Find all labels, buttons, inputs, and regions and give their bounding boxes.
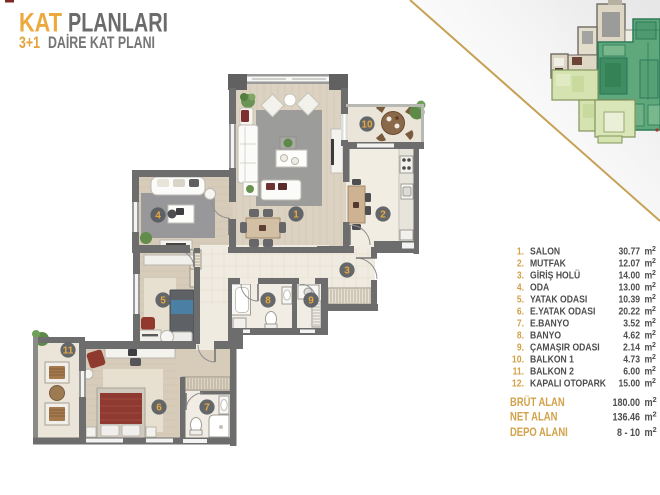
svg-text:2.14: 2.14 [623,342,640,354]
svg-text:7.: 7. [517,318,524,330]
svg-text:3.: 3. [517,270,524,282]
svg-text:2: 2 [652,246,656,253]
svg-text:2: 2 [380,209,386,220]
svg-text:2: 2 [653,410,657,419]
svg-text:4.62: 4.62 [623,330,640,342]
svg-text:12.07: 12.07 [619,258,641,270]
svg-text:1.: 1. [517,246,524,258]
svg-text:10.39: 10.39 [619,294,641,306]
svg-text:10.: 10. [512,354,524,366]
svg-text:136.46: 136.46 [613,412,641,424]
svg-text:10: 10 [361,119,373,130]
svg-text:12.: 12. [512,378,524,390]
svg-text:8.: 8. [517,330,524,342]
svg-text:BALKON 1: BALKON 1 [530,354,574,366]
svg-text:E.YATAK ODASI: E.YATAK ODASI [530,306,595,318]
svg-text:9: 9 [308,295,314,306]
svg-text:ÇAMAŞIR ODASI: ÇAMAŞIR ODASI [530,342,600,354]
svg-text:4.73: 4.73 [623,354,640,366]
svg-text:DEPO ALANI: DEPO ALANI [510,427,568,439]
svg-text:KAT: KAT [19,8,62,38]
svg-text:2: 2 [652,342,656,349]
svg-text:11: 11 [63,345,74,356]
svg-text:4.: 4. [517,282,524,294]
svg-text:1: 1 [293,209,299,220]
svg-text:2: 2 [652,270,656,277]
svg-text:NET ALAN: NET ALAN [510,412,557,424]
svg-text:BRÜT ALAN: BRÜT ALAN [510,396,565,409]
svg-text:2: 2 [652,258,656,265]
svg-text:11.: 11. [513,366,524,378]
svg-text:6.: 6. [517,306,524,318]
svg-text:4: 4 [155,210,161,221]
svg-text:9.: 9. [517,342,524,354]
svg-text:2: 2 [653,395,657,404]
svg-text:2: 2 [653,425,657,434]
svg-text:MUTFAK: MUTFAK [530,258,566,270]
svg-text:5.: 5. [517,294,524,306]
svg-text:3: 3 [344,265,350,276]
svg-text:8: 8 [265,295,271,306]
svg-text:2: 2 [652,330,656,337]
svg-text:2: 2 [652,354,656,361]
svg-text:ODA: ODA [530,282,550,294]
svg-text:2: 2 [652,366,656,373]
svg-text:2: 2 [652,282,656,289]
svg-text:DAİRE KAT PLANI: DAİRE KAT PLANI [48,34,155,52]
svg-text:180.00: 180.00 [613,397,641,409]
svg-text:3.52: 3.52 [623,318,640,330]
svg-text:E.BANYO: E.BANYO [530,318,569,330]
svg-text:5: 5 [160,295,166,306]
svg-text:PLANLARI: PLANLARI [68,8,168,38]
svg-text:30.77: 30.77 [619,246,641,258]
svg-text:2: 2 [652,378,656,385]
svg-text:2.: 2. [517,258,524,270]
svg-text:6.00: 6.00 [623,366,640,378]
svg-text:8 - 10: 8 - 10 [617,427,640,439]
svg-text:6: 6 [156,402,162,413]
svg-text:2: 2 [652,294,656,301]
svg-text:7: 7 [204,402,210,413]
svg-text:YATAK ODASI: YATAK ODASI [530,294,587,306]
svg-text:SALON: SALON [530,246,560,258]
svg-text:13.00: 13.00 [619,282,641,294]
svg-text:KAPALI OTOPARK: KAPALI OTOPARK [530,378,606,390]
svg-text:20.22: 20.22 [619,306,641,318]
svg-text:BANYO: BANYO [530,330,561,342]
svg-text:2: 2 [652,306,656,313]
svg-text:GİRİŞ HOLÜ: GİRİŞ HOLÜ [530,269,580,282]
svg-text:15.00: 15.00 [619,378,641,390]
svg-text:3+1: 3+1 [19,34,40,52]
svg-text:BALKON 2: BALKON 2 [530,366,574,378]
svg-text:14.00: 14.00 [619,270,641,282]
svg-text:2: 2 [652,318,656,325]
